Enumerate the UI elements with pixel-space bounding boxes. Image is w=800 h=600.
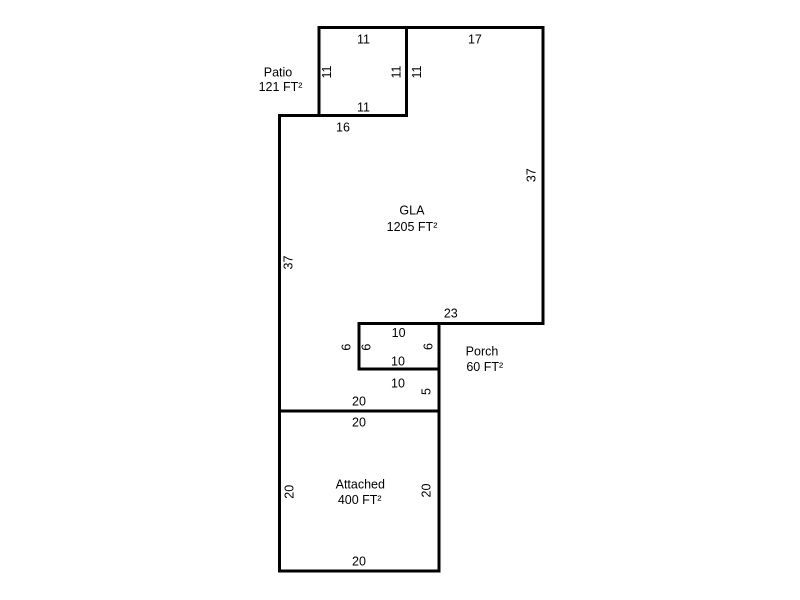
svg-text:Patio: Patio — [264, 66, 293, 80]
svg-text:10: 10 — [391, 355, 405, 369]
svg-text:37: 37 — [524, 168, 538, 182]
svg-text:GLA: GLA — [399, 203, 425, 217]
svg-text:10: 10 — [391, 377, 405, 391]
svg-text:20: 20 — [283, 485, 297, 499]
svg-text:11: 11 — [390, 65, 404, 78]
svg-text:20: 20 — [420, 484, 434, 498]
svg-text:Porch: Porch — [466, 344, 499, 358]
svg-text:23: 23 — [444, 306, 458, 320]
svg-text:10: 10 — [392, 326, 406, 340]
svg-text:6: 6 — [422, 343, 436, 350]
svg-text:20: 20 — [352, 395, 366, 409]
svg-text:1205 FT²: 1205 FT² — [387, 220, 438, 234]
svg-text:16: 16 — [336, 121, 350, 135]
svg-text:11: 11 — [410, 65, 424, 78]
svg-text:400 FT²: 400 FT² — [338, 493, 382, 507]
svg-text:20: 20 — [352, 555, 366, 569]
svg-text:60 FT²: 60 FT² — [466, 360, 503, 374]
svg-text:20: 20 — [352, 416, 366, 430]
svg-text:11: 11 — [357, 100, 370, 114]
svg-text:11: 11 — [320, 65, 334, 78]
svg-text:17: 17 — [468, 32, 482, 46]
svg-text:11: 11 — [357, 32, 370, 46]
svg-text:5: 5 — [420, 388, 434, 395]
svg-text:6: 6 — [360, 344, 374, 351]
svg-text:6: 6 — [340, 344, 354, 351]
svg-text:121 FT²: 121 FT² — [259, 80, 303, 94]
svg-text:37: 37 — [282, 256, 296, 270]
svg-text:Attached: Attached — [336, 478, 385, 492]
